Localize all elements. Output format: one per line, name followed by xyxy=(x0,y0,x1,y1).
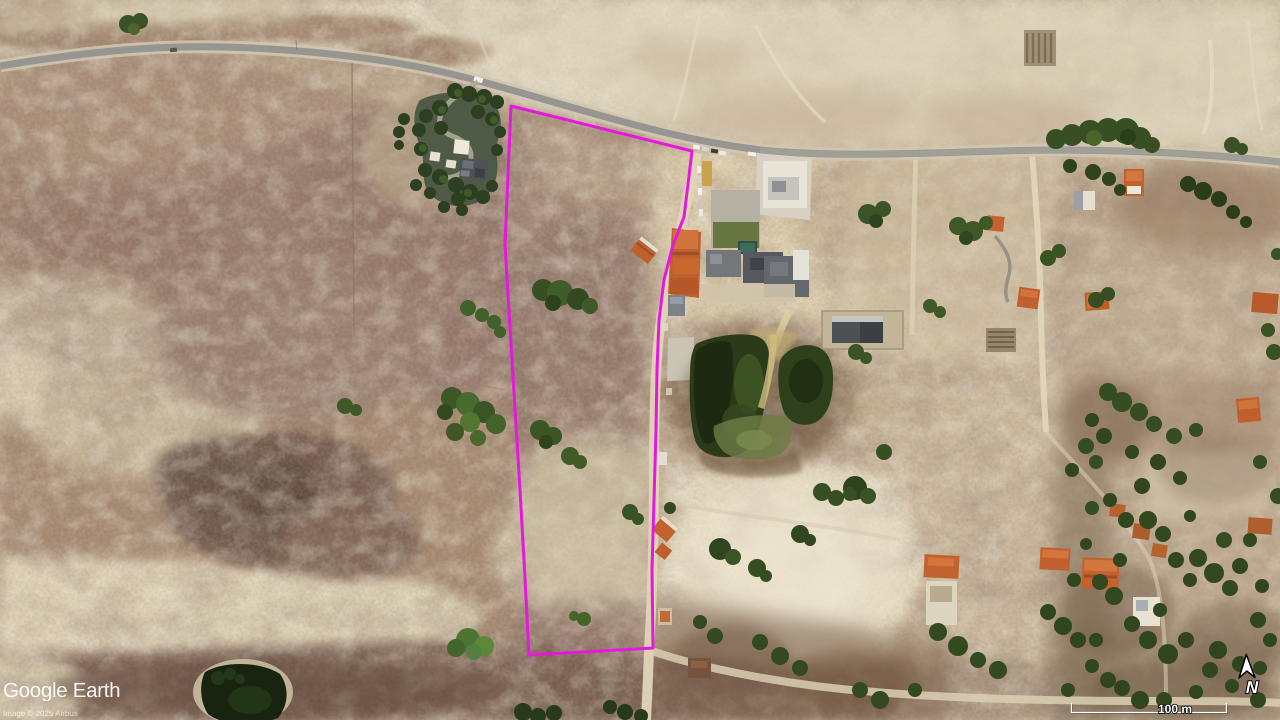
svg-text:Google Earth: Google Earth xyxy=(3,679,120,702)
svg-text:Image © 2025 Airbus: Image © 2025 Airbus xyxy=(3,709,78,718)
svg-text:100 m: 100 m xyxy=(1158,702,1192,716)
svg-text:N: N xyxy=(1246,678,1259,697)
